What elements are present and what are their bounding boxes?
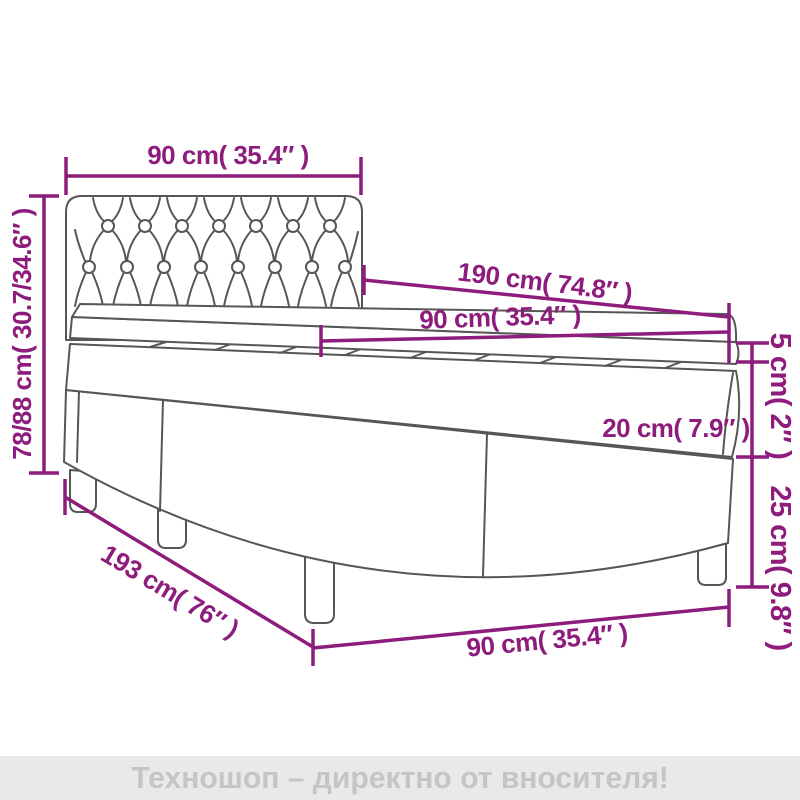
footer-text: Техношоп – директно от вносителя! xyxy=(131,760,668,796)
leg-front-middle xyxy=(305,556,334,623)
footer-banner: Техношоп – директно от вносителя! xyxy=(0,756,800,800)
dim-total-height: 78/88 cm( 30.7/34.6″ ) xyxy=(7,196,59,473)
dim-label-headboard-width: 90 cm( 35.4″ ) xyxy=(147,140,309,170)
dim-label-topper-thickness: 5 cm( 2″ ) xyxy=(764,333,796,460)
dim-label-total-height: 78/88 cm( 30.7/34.6″ ) xyxy=(7,208,37,460)
bed-dimension-diagram-page: 90 cm( 35.4″ ) 78/88 cm( 30.7/34.6″ ) 19… xyxy=(0,0,800,800)
dim-label-mattress-thickness: 20 cm( 7.9″ ) xyxy=(602,413,750,443)
dim-frame-width: 90 cm( 35.4″ ) xyxy=(313,589,729,663)
dim-headboard-width: 90 cm( 35.4″ ) xyxy=(66,140,361,195)
dim-label-frame-width: 90 cm( 35.4″ ) xyxy=(465,617,629,662)
bed-dimension-diagram: 90 cm( 35.4″ ) 78/88 cm( 30.7/34.6″ ) 19… xyxy=(0,0,800,800)
dim-label-mattress-width: 90 cm( 35.4″ ) xyxy=(419,299,581,335)
dim-label-base-height: 25 cm( 9.8″ ) xyxy=(764,485,796,650)
